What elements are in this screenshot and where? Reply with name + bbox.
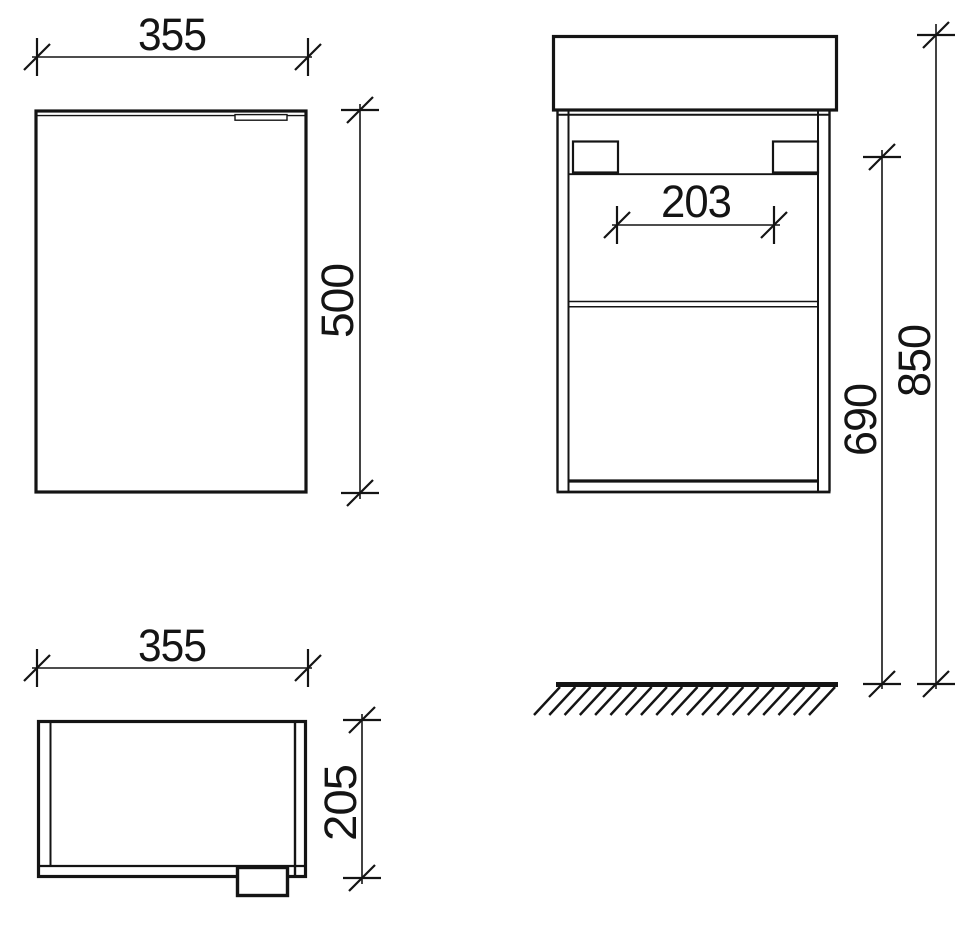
- ground-hatch-line: [748, 687, 774, 715]
- mounting-height-label: 690: [835, 384, 886, 456]
- ground-hatch-line: [595, 687, 621, 715]
- side-view-right-wall-bracket: [773, 142, 818, 173]
- bracket-gap-label: 203: [661, 176, 731, 227]
- front-view-cabinet-outline: [36, 111, 306, 492]
- plan-width-dimension: 355: [24, 620, 321, 687]
- overall-height-label: 850: [889, 325, 940, 397]
- ground-hatch-line: [778, 687, 804, 715]
- plan-width-label: 355: [138, 620, 206, 671]
- ground-symbol: [534, 685, 838, 716]
- front-width-label: 355: [138, 9, 206, 60]
- ground-hatch-line: [641, 687, 667, 715]
- ground-hatch-line: [610, 687, 636, 715]
- front-height-dimension: 500: [312, 97, 379, 506]
- drawing-stage: 355 500 355 205: [0, 0, 970, 931]
- overall-height-dimension: 850: [889, 22, 955, 697]
- ground-hatch-line: [626, 687, 652, 715]
- ground-hatch-line: [549, 687, 575, 715]
- ground-hatch-line: [687, 687, 713, 715]
- ground-hatch: [534, 687, 835, 715]
- front-height-label: 500: [312, 264, 363, 338]
- front-view-handle-slot: [235, 115, 287, 121]
- bracket-gap-dimension: 203: [604, 176, 787, 244]
- plan-view-cabinet-outline: [39, 722, 306, 877]
- ground-hatch-line: [733, 687, 759, 715]
- ground-hatch-line: [717, 687, 743, 715]
- cabinet-dimension-drawing: 355 500 355 205: [0, 0, 970, 931]
- ground-hatch-line: [534, 687, 560, 715]
- plan-view: 355 205: [24, 620, 381, 896]
- front-view: 355 500: [24, 9, 379, 506]
- side-view-left-wall-bracket: [573, 142, 618, 173]
- plan-view-handle-block: [238, 868, 288, 896]
- side-view: 203: [554, 37, 837, 493]
- ground-hatch-line: [794, 687, 820, 715]
- ground-hatch-line: [565, 687, 591, 715]
- side-view-washbasin: [554, 37, 837, 111]
- plan-depth-label: 205: [315, 765, 366, 841]
- plan-depth-dimension: 205: [315, 707, 381, 891]
- ground-hatch-line: [580, 687, 606, 715]
- front-width-dimension: 355: [24, 9, 321, 76]
- ground-hatch-line: [672, 687, 698, 715]
- ground-hatch-line: [702, 687, 728, 715]
- ground-hatch-line: [763, 687, 789, 715]
- mounting-height-dimension: 690: [835, 144, 901, 697]
- ground-hatch-line: [656, 687, 682, 715]
- ground-hatch-line: [809, 687, 835, 715]
